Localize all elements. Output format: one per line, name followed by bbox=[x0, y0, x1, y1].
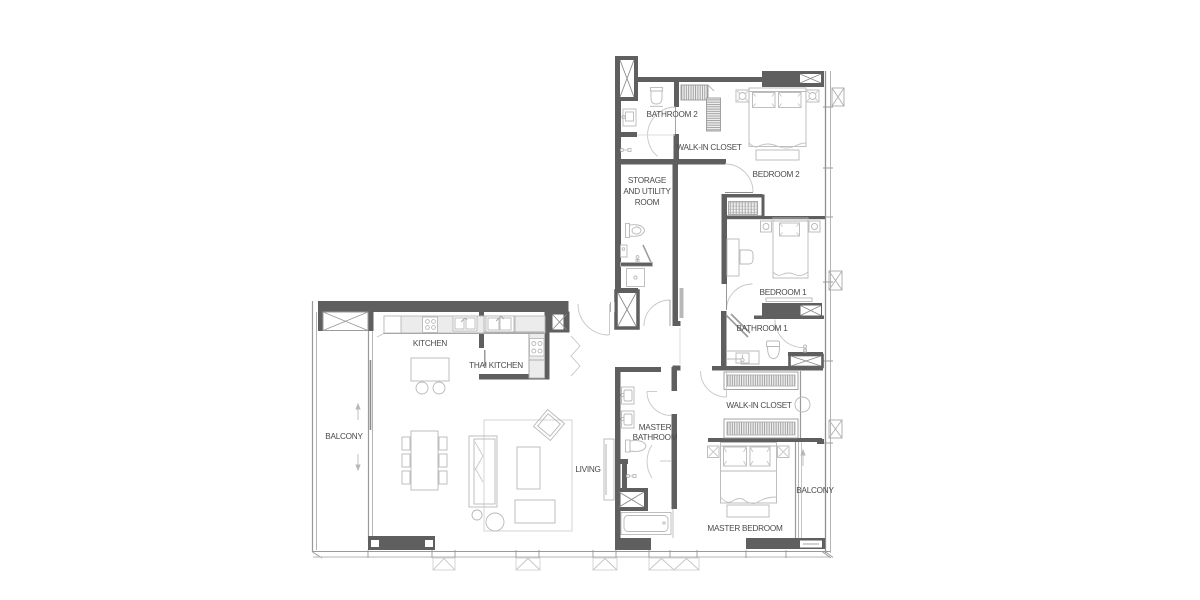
svg-text:AND UTILITY: AND UTILITY bbox=[623, 187, 671, 196]
svg-text:BALCONY: BALCONY bbox=[325, 432, 363, 441]
svg-text:BEDROOM 1: BEDROOM 1 bbox=[760, 288, 808, 297]
svg-text:WALK-IN CLOSET: WALK-IN CLOSET bbox=[676, 143, 742, 152]
svg-text:STORAGE: STORAGE bbox=[628, 176, 667, 185]
svg-text:BATHROOM 1: BATHROOM 1 bbox=[736, 324, 788, 333]
svg-text:MASTER BEDROOM: MASTER BEDROOM bbox=[707, 524, 783, 533]
svg-text:KITCHEN: KITCHEN bbox=[413, 339, 448, 348]
svg-text:LIVING: LIVING bbox=[575, 465, 600, 474]
svg-text:BATHROOM 2: BATHROOM 2 bbox=[646, 110, 698, 119]
svg-text:MASTER: MASTER bbox=[639, 423, 672, 432]
svg-text:BATHROOM: BATHROOM bbox=[633, 433, 678, 442]
svg-text:BALCONY: BALCONY bbox=[796, 486, 834, 495]
svg-text:ROOM: ROOM bbox=[635, 198, 660, 207]
svg-text:THAI KITCHEN: THAI KITCHEN bbox=[469, 361, 523, 370]
svg-text:BEDROOM 2: BEDROOM 2 bbox=[753, 170, 801, 179]
svg-text:WALK-IN CLOSET: WALK-IN CLOSET bbox=[726, 401, 792, 410]
